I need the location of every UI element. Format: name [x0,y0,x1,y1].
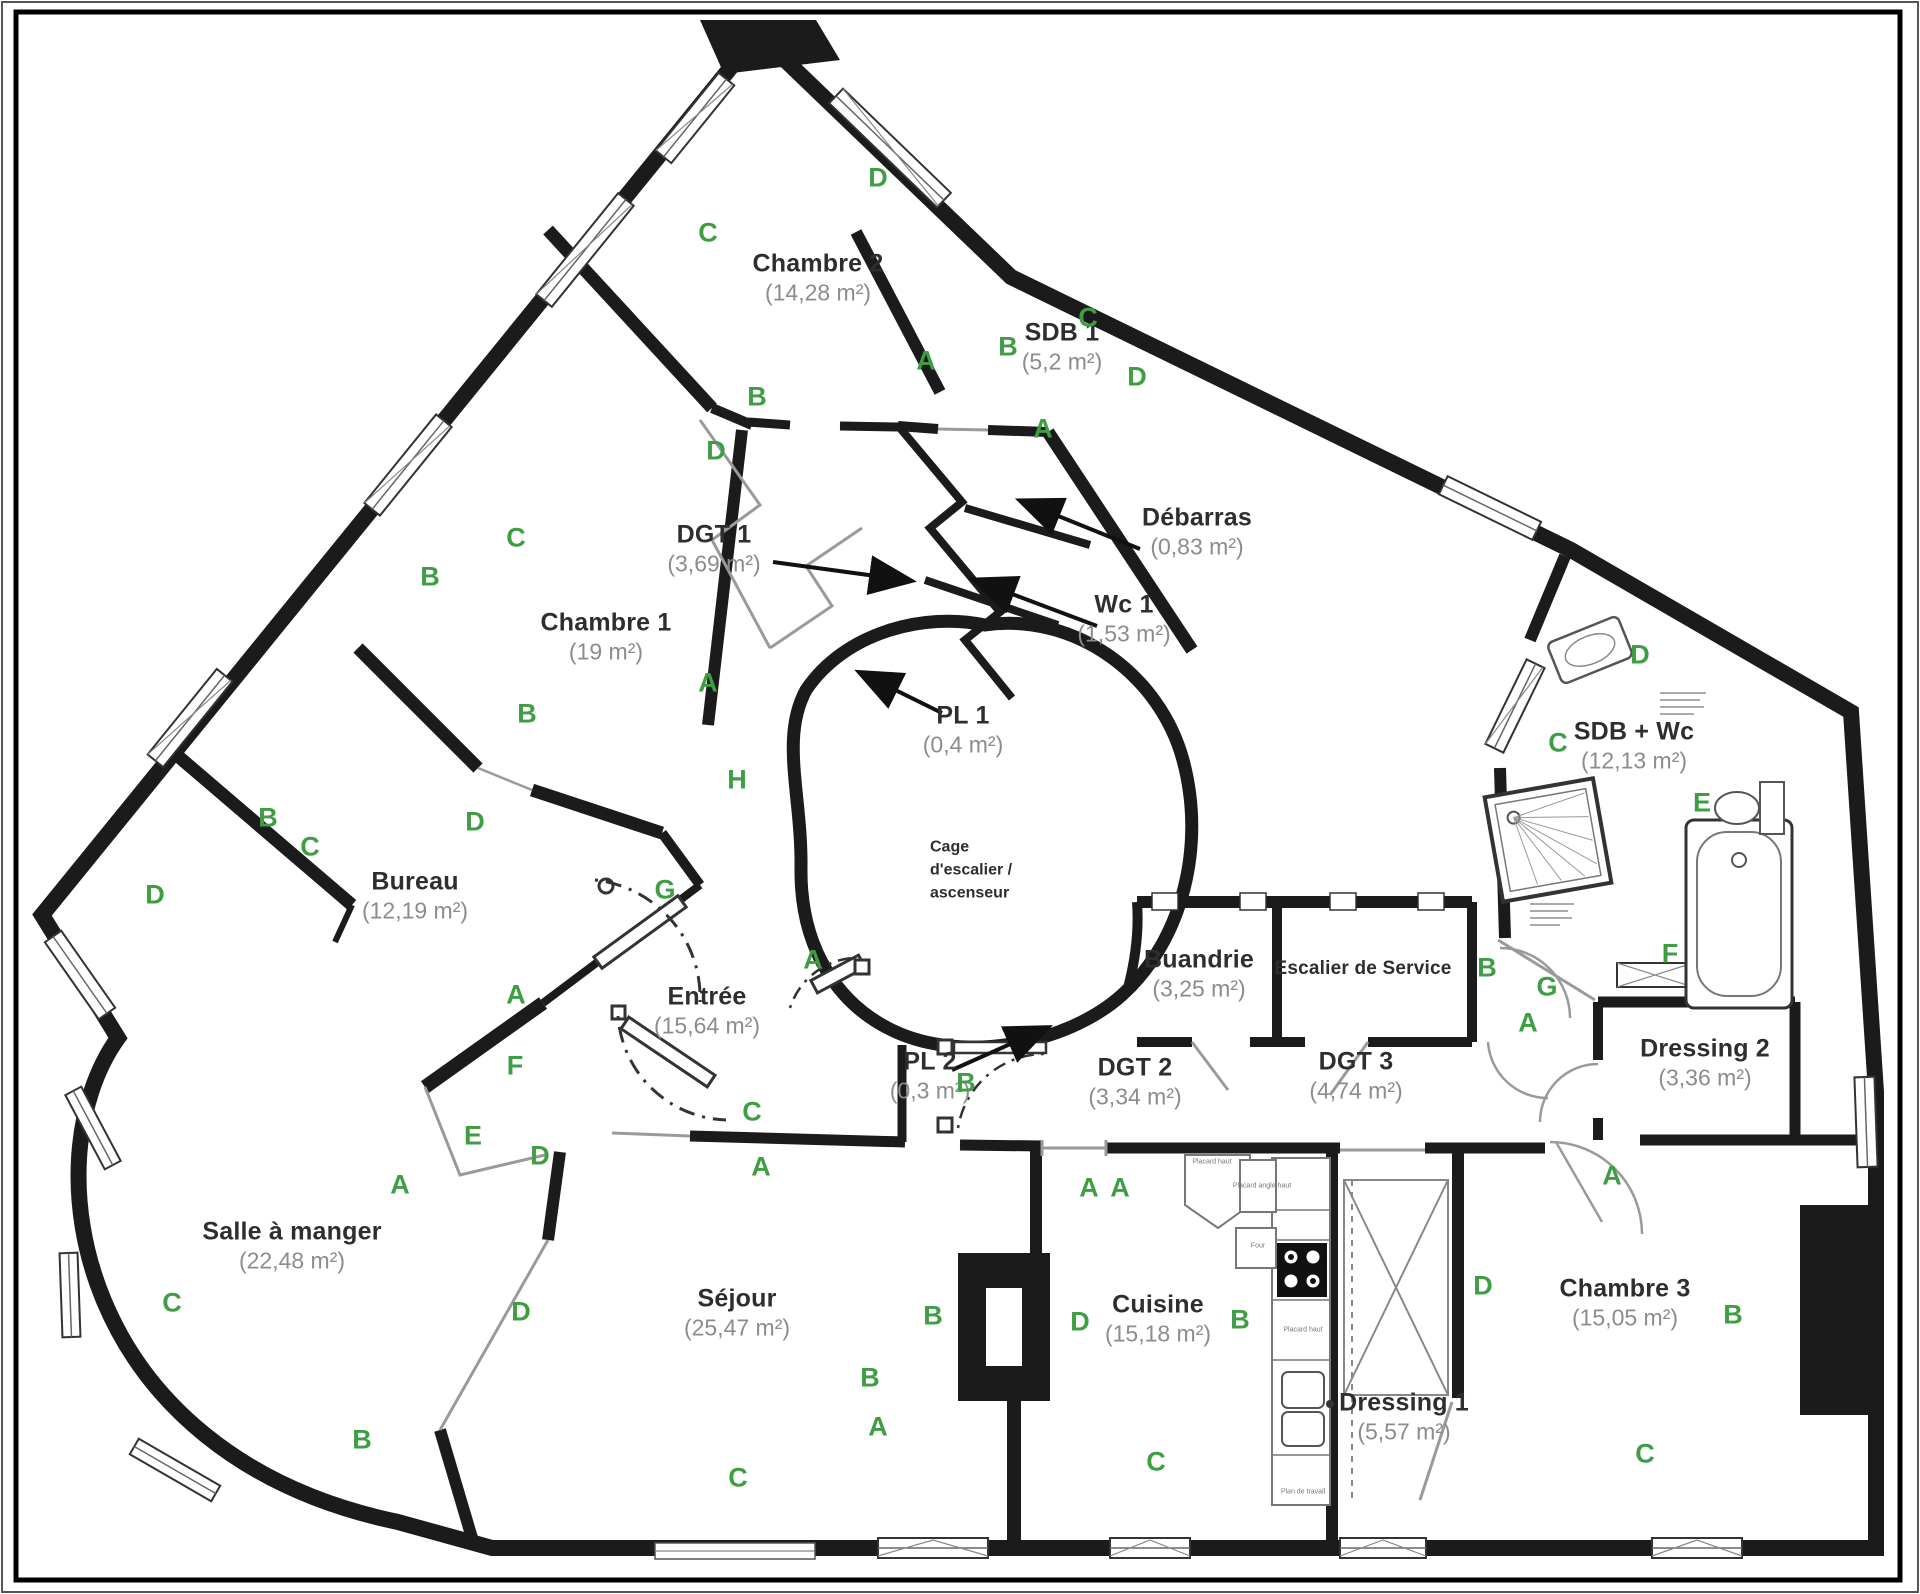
shower [1485,778,1612,901]
wardrobe [1344,1180,1448,1500]
floorplan-drawing [0,0,1920,1594]
entrance-doors [594,879,1046,1132]
washbasin [1547,615,1634,684]
floorplan-page: Caged'escalier /ascenseur Chambre 2(14,2… [0,0,1920,1594]
bathtub [1686,820,1792,1008]
stair-core-outline [793,621,1191,1047]
chimney-slot [986,1288,1022,1366]
kitchen-counter [1185,1155,1334,1505]
